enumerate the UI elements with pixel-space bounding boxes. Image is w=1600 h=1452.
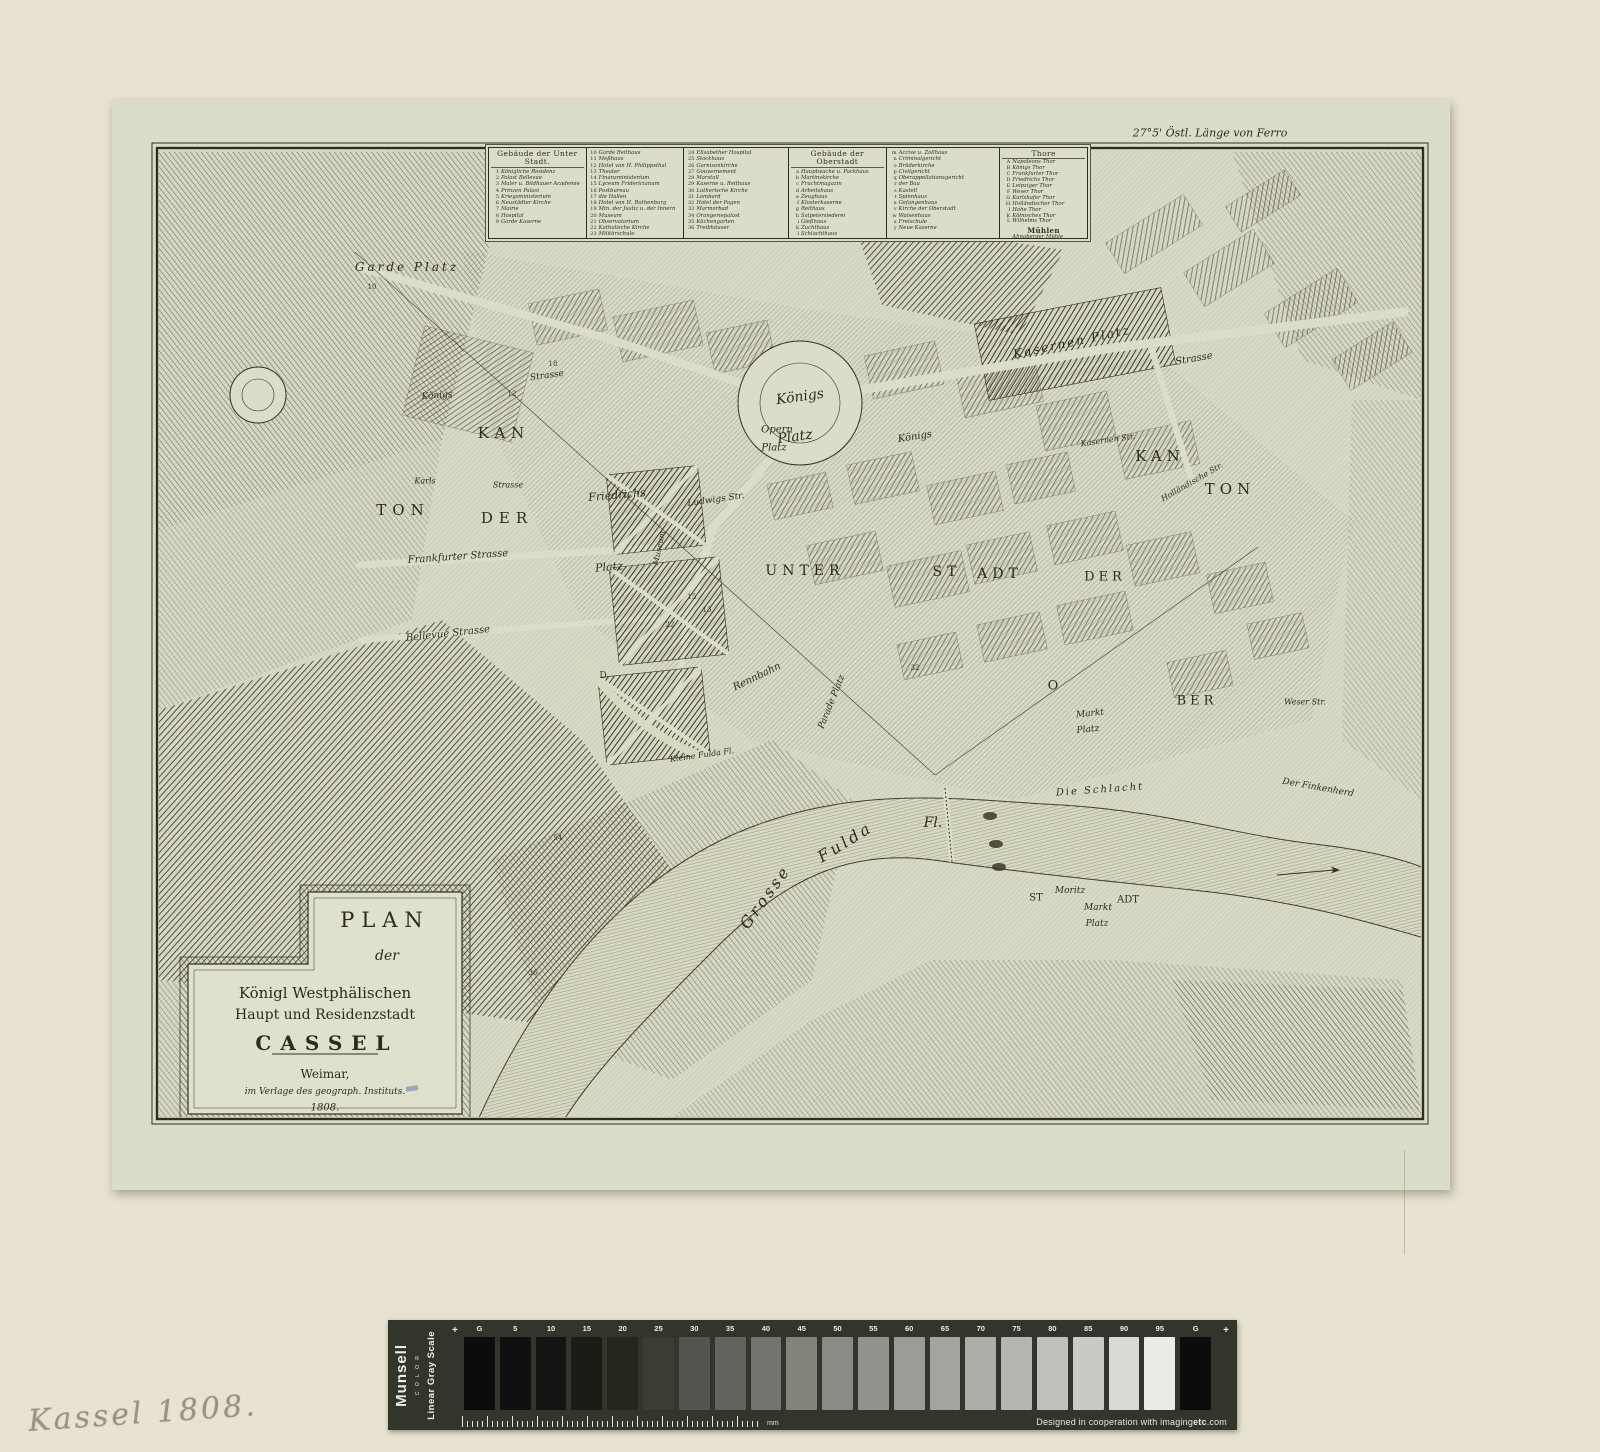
grayscale-patch-label: 80 — [1037, 1324, 1068, 1337]
map-sheet: Gebäude der Unter Stadt. 1Königliche Res… — [112, 100, 1450, 1190]
grayscale-patch-label: 35 — [715, 1324, 746, 1337]
legend-entry: 36Treibhäuser — [686, 225, 786, 231]
grayscale-patch-swatch — [500, 1337, 531, 1410]
grayscale-patch: 25 — [643, 1324, 674, 1410]
grayscale-patch: 65 — [930, 1324, 961, 1410]
legend-table: Gebäude der Unter Stadt. 1Königliche Res… — [488, 147, 1088, 239]
ruler-ticks — [462, 1416, 762, 1427]
grayscale-patch: 75 — [1001, 1324, 1032, 1410]
legend-header: Gebäude der Oberstadt — [791, 150, 884, 168]
legend-column-5: mAccise u. ZollhausnCriminalgerichtoBrüd… — [886, 148, 1000, 238]
grayscale-patch-swatch — [965, 1337, 996, 1410]
grayscale-patch: 35 — [715, 1324, 746, 1410]
grayscale-patch-label: 50 — [822, 1324, 853, 1337]
grayscale-patch-swatch — [464, 1337, 495, 1410]
grayscale-patch: 45 — [786, 1324, 817, 1410]
grayscale-patch-swatch — [715, 1337, 746, 1410]
legend-header: Gebäude der Unter Stadt. — [491, 150, 584, 168]
grayscale-patch-label: 40 — [751, 1324, 782, 1337]
handwritten-note: Kassel 1808. — [27, 1388, 259, 1439]
plus-mark: + — [452, 1325, 458, 1336]
grayscale-patch-swatch — [894, 1337, 925, 1410]
grayscale-patch-swatch — [1073, 1337, 1104, 1410]
grayscale-patch: 15 — [571, 1324, 602, 1410]
grayscale-bar: Munsell C O L O R Linear Gray Scale + + … — [388, 1320, 1237, 1430]
grayscale-patch: 20 — [607, 1324, 638, 1410]
grayscale-patch: G — [1180, 1324, 1211, 1410]
grayscale-patch-label: 55 — [858, 1324, 889, 1337]
grayscale-patch-label: 5 — [500, 1324, 531, 1337]
grayscale-patch: 50 — [822, 1324, 853, 1410]
grayscale-patch-label: 20 — [607, 1324, 638, 1337]
legend-column-oberstadt: Gebäude der Oberstadt aHauptwache u. Pac… — [788, 148, 886, 238]
legend-entry: yNeue Kaserne — [889, 225, 998, 231]
grayscale-branding: Munsell C O L O R Linear Gray Scale — [393, 1324, 451, 1426]
grayscale-patch: 85 — [1073, 1324, 1104, 1410]
grayscale-patch: 90 — [1109, 1324, 1140, 1410]
grayscale-patch-label: 25 — [643, 1324, 674, 1337]
legend-column-3: 24Elisabether Hospital25Stockhaus26Garni… — [683, 148, 788, 238]
grayscale-patch-label: 75 — [1001, 1324, 1032, 1337]
map-engraving — [112, 100, 1450, 1190]
legend-entry: Ahnaberger Mühle — [1002, 235, 1085, 238]
legend-entry: LWilhelms Thor — [1002, 219, 1085, 225]
grayscale-patch-swatch — [571, 1337, 602, 1410]
grayscale-patch-label: 90 — [1109, 1324, 1140, 1337]
legend-entry: lSchlachthaus — [791, 231, 884, 237]
legend-column-thore: Thore ANapoleons ThorBKönigs ThorCFrankf… — [999, 148, 1087, 238]
grayscale-patch-swatch — [1001, 1337, 1032, 1410]
grayscale-patch-swatch — [751, 1337, 782, 1410]
grayscale-patch-swatch — [679, 1337, 710, 1410]
grayscale-patch-label: 70 — [965, 1324, 996, 1337]
grayscale-patch-label: 85 — [1073, 1324, 1104, 1337]
grayscale-patch: G — [464, 1324, 495, 1410]
grayscale-patch: 30 — [679, 1324, 710, 1410]
legend-column-2: 10Garde Reithaus11Meßhaus12Hotel von H. … — [586, 148, 684, 238]
plus-mark: + — [1223, 1325, 1229, 1336]
grayscale-patch: 95 — [1144, 1324, 1175, 1410]
grayscale-patch-swatch — [643, 1337, 674, 1410]
grayscale-patch: 60 — [894, 1324, 925, 1410]
grayscale-patch-label: 10 — [536, 1324, 567, 1337]
grayscale-patch-label: 65 — [930, 1324, 961, 1337]
munsell-brand-label: Munsell — [393, 1344, 410, 1407]
legend-entry: 23Militärschule — [589, 231, 682, 237]
grayscale-patch-label: 95 — [1144, 1324, 1175, 1337]
grayscale-patches: G5101520253035404550556065707580859095G — [464, 1324, 1211, 1410]
grayscale-title: Linear Gray Scale — [426, 1331, 437, 1420]
grayscale-patch-swatch — [1144, 1337, 1175, 1410]
grayscale-patch: 80 — [1037, 1324, 1068, 1410]
legend-header: Thore — [1002, 150, 1085, 159]
legend-entry: 9Garde Kaserne — [491, 219, 584, 225]
grayscale-patch: 10 — [536, 1324, 567, 1410]
munsell-color-label: C O L O R — [415, 1354, 421, 1395]
legend-column-unterstadt: Gebäude der Unter Stadt. 1Königliche Res… — [489, 148, 586, 238]
grayscale-patch-label: 45 — [786, 1324, 817, 1337]
grayscale-patch-label: 15 — [571, 1324, 602, 1337]
grayscale-patch-swatch — [536, 1337, 567, 1410]
paper-crease — [1404, 1150, 1405, 1255]
grayscale-patch-label: 30 — [679, 1324, 710, 1337]
grayscale-patch-label: G — [1180, 1324, 1211, 1337]
grayscale-patch-swatch — [930, 1337, 961, 1410]
grayscale-patch-swatch — [1037, 1337, 1068, 1410]
grayscale-patch: 55 — [858, 1324, 889, 1410]
grayscale-patch-swatch — [858, 1337, 889, 1410]
grayscale-patch-label: 60 — [894, 1324, 925, 1337]
grayscale-footer: mm Designed in cooperation with imaginge… — [462, 1411, 1227, 1427]
grayscale-patch-swatch — [1109, 1337, 1140, 1410]
credit-text: Designed in cooperation with imagingetc.… — [1036, 1417, 1227, 1427]
grayscale-patch: 40 — [751, 1324, 782, 1410]
grayscale-patch-swatch — [1180, 1337, 1211, 1410]
mm-ruler: mm — [462, 1416, 779, 1427]
grayscale-patch-swatch — [822, 1337, 853, 1410]
grayscale-patch: 5 — [500, 1324, 531, 1410]
grayscale-patch-swatch — [786, 1337, 817, 1410]
grayscale-patch-swatch — [607, 1337, 638, 1410]
grayscale-patch: 70 — [965, 1324, 996, 1410]
grayscale-patch-label: G — [464, 1324, 495, 1337]
ruler-unit-label: mm — [767, 1420, 779, 1427]
